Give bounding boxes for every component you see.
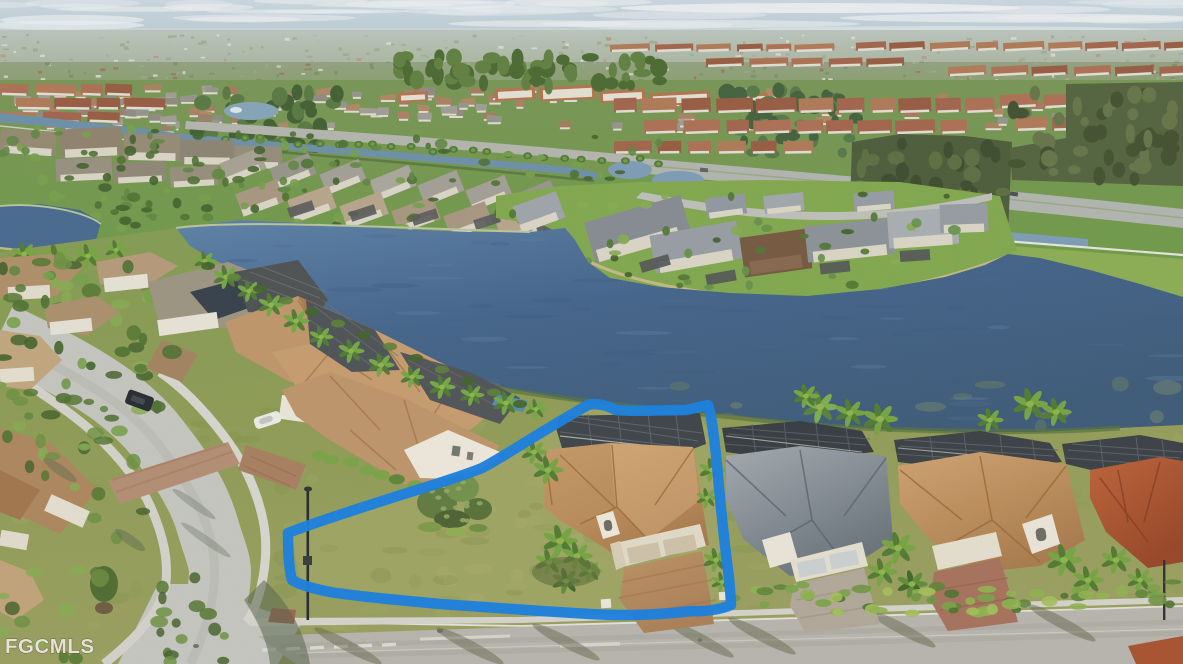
svg-text:FGCMLS: FGCMLS (5, 635, 95, 658)
